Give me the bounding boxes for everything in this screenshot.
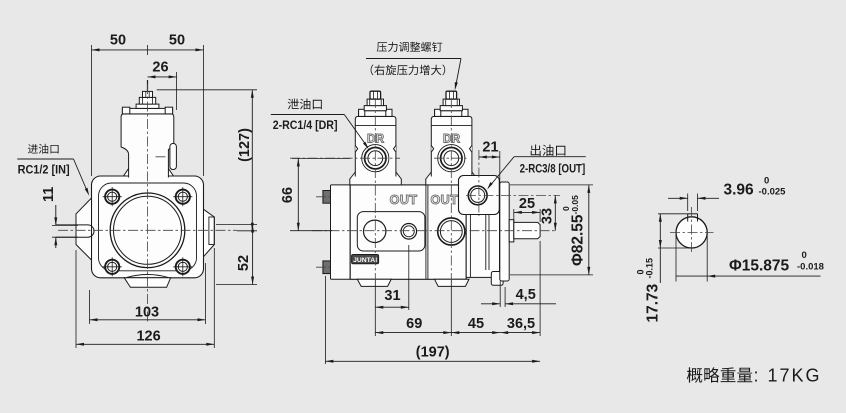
svg-text:-0.15: -0.15 xyxy=(645,258,655,279)
svg-text:36,5: 36,5 xyxy=(507,316,535,332)
svg-text:Φ82.55: Φ82.55 xyxy=(570,214,587,266)
svg-text:2-RC1/4 [DR]: 2-RC1/4 [DR] xyxy=(273,120,338,132)
svg-text:31: 31 xyxy=(384,288,400,304)
svg-text:DR: DR xyxy=(443,133,461,145)
svg-text:17.73: 17.73 xyxy=(645,283,662,322)
svg-text:(127): (127) xyxy=(237,128,253,162)
svg-text:DR: DR xyxy=(367,133,385,145)
svg-text:25: 25 xyxy=(519,196,535,212)
svg-text:0: 0 xyxy=(802,250,807,261)
svg-text:52: 52 xyxy=(236,255,252,271)
svg-text:45: 45 xyxy=(468,316,484,332)
svg-text:50: 50 xyxy=(169,33,185,49)
svg-text:: 17KG: : 17KG xyxy=(754,365,822,385)
svg-text:69: 69 xyxy=(406,316,422,332)
svg-text:3.96: 3.96 xyxy=(724,182,755,199)
svg-text:26: 26 xyxy=(152,60,168,76)
svg-text:4,5: 4,5 xyxy=(516,287,536,303)
svg-text:66: 66 xyxy=(280,187,296,203)
svg-text:11: 11 xyxy=(41,187,57,202)
svg-text:-0.018: -0.018 xyxy=(797,261,824,272)
svg-text:21: 21 xyxy=(482,140,498,156)
svg-text:103: 103 xyxy=(135,304,159,320)
svg-text:Φ15.875: Φ15.875 xyxy=(729,257,790,274)
svg-text:RC1/2 [IN]: RC1/2 [IN] xyxy=(18,164,70,176)
svg-text:2-RC3/8 [OUT]: 2-RC3/8 [OUT] xyxy=(520,164,586,176)
svg-text:50: 50 xyxy=(110,33,126,49)
svg-text:OUT: OUT xyxy=(430,193,458,207)
svg-text:JUNTAI: JUNTAI xyxy=(353,257,377,264)
svg-text:0: 0 xyxy=(764,176,769,187)
svg-text:33: 33 xyxy=(540,208,556,224)
svg-text:-0.05: -0.05 xyxy=(570,195,580,215)
svg-text:(197): (197) xyxy=(416,345,450,361)
svg-text:-0.025: -0.025 xyxy=(759,187,787,198)
svg-text:126: 126 xyxy=(136,328,160,344)
svg-text:OUT: OUT xyxy=(390,193,418,207)
